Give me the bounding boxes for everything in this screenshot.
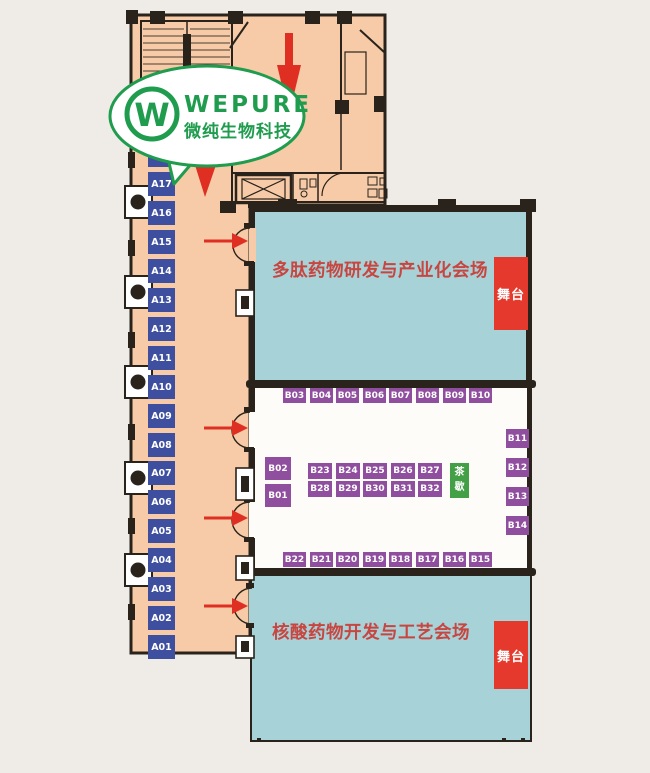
logo-subtitle: 微纯生物科技: [183, 121, 292, 142]
logo-brand: WEPURE: [184, 92, 312, 118]
logo-bubble: W WEPURE 微纯生物科技: [0, 0, 650, 773]
venue-floor-plan: 多肽药物研发与产业化会场 舞台 核酸药物开发与工艺会场 舞台 茶歇 A18A17…: [0, 0, 650, 773]
logo-monogram: W: [134, 96, 169, 134]
